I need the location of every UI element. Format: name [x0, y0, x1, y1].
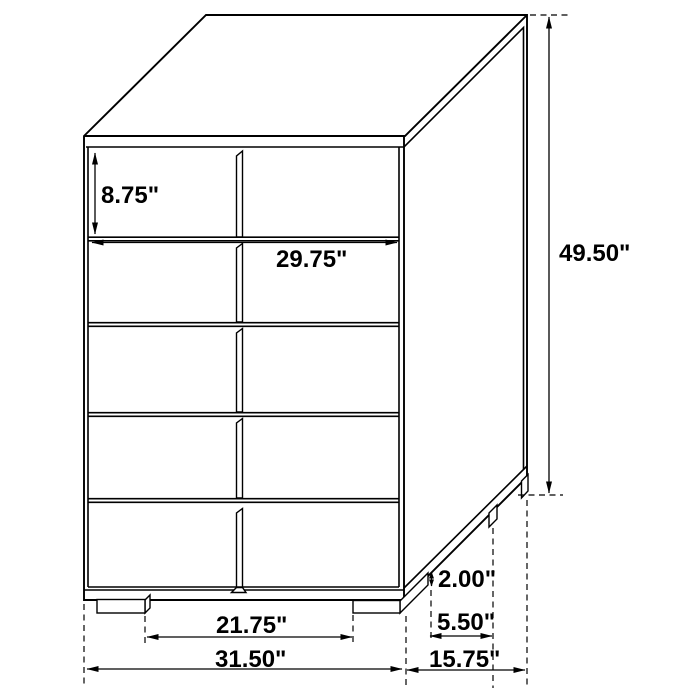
overall-height-label: 49.50" — [559, 240, 630, 267]
dimension-diagram-canvas: 8.75" 29.75" 49.50" 2.00" 5.50" 21.75" 3… — [0, 0, 700, 700]
drawer-pull-strip-1 — [237, 151, 243, 237]
leg-height-label: 2.00" — [438, 566, 496, 593]
front-left-leg — [97, 600, 145, 614]
interior-width-label: 29.75" — [276, 246, 347, 273]
cabinet-body — [84, 15, 527, 600]
drawer-height-label: 8.75" — [101, 182, 159, 209]
drawer-pull-strip-2 — [237, 244, 243, 323]
chest-line-drawing: 8.75" 29.75" 49.50" 2.00" 5.50" 21.75" 3… — [0, 0, 700, 700]
drawer-pull-strip-4 — [237, 419, 243, 499]
overall-width-label: 31.50" — [215, 646, 286, 673]
cabinet-silhouette — [84, 15, 527, 600]
drawer-pull-strip-3 — [237, 329, 243, 413]
drawer-pull-strip-5 — [237, 509, 243, 588]
overall-depth-label: 15.75" — [429, 646, 500, 673]
front-right-leg — [353, 601, 400, 614]
leg-spacing-label: 21.75" — [216, 612, 287, 639]
leg-depth-label: 5.50" — [437, 609, 495, 636]
